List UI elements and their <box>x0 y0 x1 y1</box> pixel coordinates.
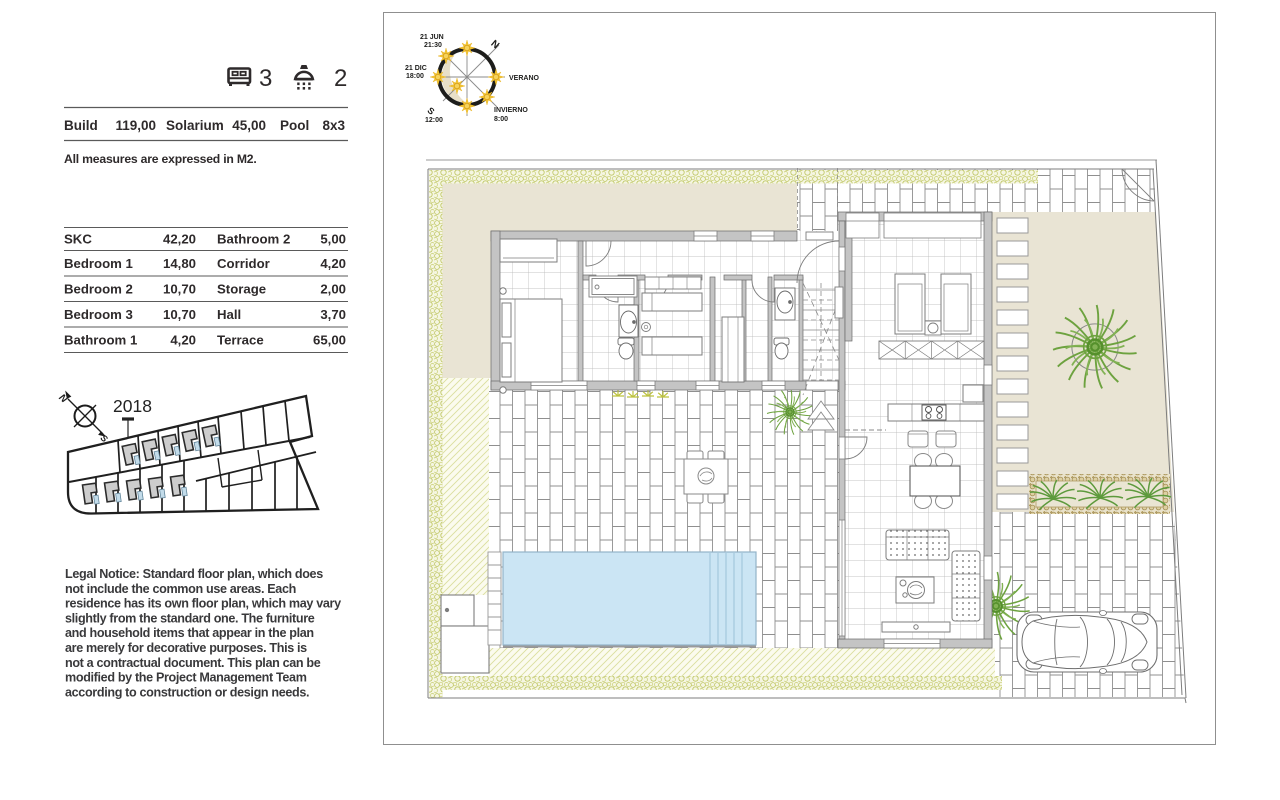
svg-text:14,80: 14,80 <box>163 256 196 271</box>
svg-text:21 JUN: 21 JUN <box>420 34 444 41</box>
svg-text:45,00: 45,00 <box>232 118 266 133</box>
svg-text:2,00: 2,00 <box>320 281 346 296</box>
svg-text:SKC: SKC <box>64 232 92 247</box>
svg-text:Bathroom 1: Bathroom 1 <box>64 332 137 347</box>
svg-text:2: 2 <box>334 65 347 92</box>
svg-text:8x3: 8x3 <box>322 118 345 133</box>
svg-text:Bedroom 2: Bedroom 2 <box>64 281 133 296</box>
svg-text:Pool: Pool <box>280 118 309 133</box>
svg-text:4,20: 4,20 <box>320 256 346 271</box>
svg-text:21 DIC: 21 DIC <box>405 65 427 72</box>
svg-text:Corridor: Corridor <box>217 256 270 271</box>
svg-text:INVIERNO: INVIERNO <box>494 107 528 114</box>
svg-text:2018: 2018 <box>113 396 152 416</box>
svg-text:modified by the Project Manage: modified by the Project Management Team <box>65 671 307 685</box>
svg-text:residence has its own floor pl: residence has its own floor plan, which … <box>65 597 341 611</box>
svg-text:10,70: 10,70 <box>163 281 196 296</box>
svg-text:and household items that appea: and household items that appear in the p… <box>65 626 314 640</box>
svg-text:are merely for decorative purp: are merely for decorative purposes. This… <box>65 641 307 655</box>
svg-text:All measures are expressed in: All measures are expressed in M2. <box>64 152 257 166</box>
svg-text:VERANO: VERANO <box>509 75 540 82</box>
svg-text:slightly from the standard one: slightly from the standard one. The furn… <box>65 611 315 625</box>
svg-text:according to construction or d: according to construction or design need… <box>65 685 309 699</box>
svg-text:3: 3 <box>259 65 272 92</box>
svg-text:119,00: 119,00 <box>115 118 156 133</box>
svg-text:Storage: Storage <box>217 281 266 296</box>
svg-text:21:30: 21:30 <box>424 42 442 49</box>
svg-text:Bedroom 3: Bedroom 3 <box>64 307 133 322</box>
svg-text:5,00: 5,00 <box>320 232 346 247</box>
svg-text:Build: Build <box>64 118 98 133</box>
svg-text:Bathroom 2: Bathroom 2 <box>217 232 290 247</box>
svg-text:Bedroom 1: Bedroom 1 <box>64 256 133 271</box>
svg-text:12:00: 12:00 <box>425 117 443 124</box>
svg-text:Solarium: Solarium <box>166 118 224 133</box>
svg-text:Legal Notice: Standard floor p: Legal Notice: Standard floor plan, which… <box>65 567 323 581</box>
svg-text:4,20: 4,20 <box>170 332 196 347</box>
svg-text:Terrace: Terrace <box>217 332 264 347</box>
svg-text:Hall: Hall <box>217 307 241 322</box>
svg-text:not include the common use are: not include the common use areas. Each <box>65 582 296 596</box>
svg-text:42,20: 42,20 <box>163 232 196 247</box>
svg-text:8:00: 8:00 <box>494 116 508 123</box>
svg-text:18:00: 18:00 <box>406 73 424 80</box>
svg-text:not a contractual document. Th: not a contractual document. This plan ca… <box>65 656 321 670</box>
svg-text:10,70: 10,70 <box>163 307 196 322</box>
svg-text:65,00: 65,00 <box>313 332 346 347</box>
svg-text:3,70: 3,70 <box>320 307 346 322</box>
